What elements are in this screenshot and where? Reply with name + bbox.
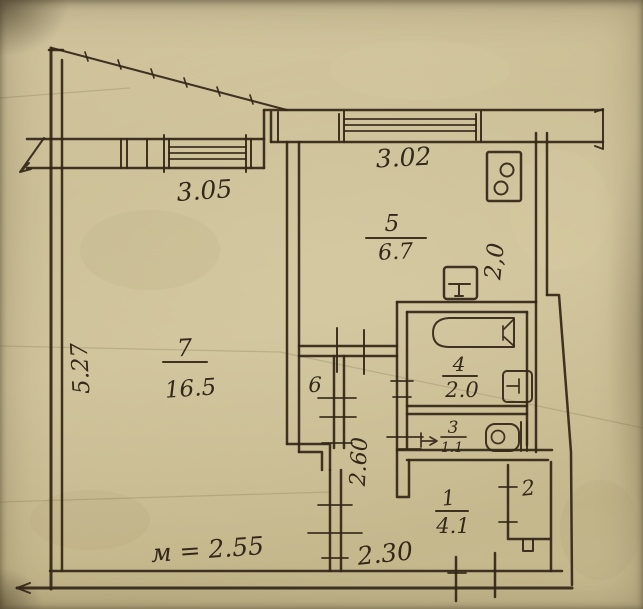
living-room-number-label: 7: [176, 334, 193, 363]
room-labels: 7 16.5 5 6.7 4 2.0 3 1.1 1 4.1 6 2: [163, 211, 536, 538]
closet6-door-marks: [318, 398, 356, 443]
kitchen-width-dimension: 3.02: [375, 142, 432, 174]
kitchen-depth-dimension: 2,0: [480, 242, 510, 282]
living-depth-dimension: 5.27: [67, 342, 96, 395]
hall-left-wall: [330, 470, 341, 571]
bath-wc-divider-wall: [407, 406, 527, 414]
wc-area-label: 1.1: [441, 440, 463, 456]
living-room-window-icon: [164, 135, 251, 172]
closet6-bottom-wall: [287, 444, 330, 470]
wc-door-marks: [387, 437, 423, 449]
entrance-door-marks: [448, 553, 495, 601]
kitchen-bottom-wall: [299, 346, 397, 356]
kitchen-number-label: 5: [385, 211, 400, 237]
living-room-area-label: 16.5: [164, 374, 217, 404]
corridor-wall-stub: [397, 450, 409, 497]
top-wall-step: [264, 110, 271, 168]
bathtub-icon: [433, 318, 514, 347]
corridor-depth-dimension: 2.60: [346, 437, 374, 488]
closet6-number-label: 6: [308, 373, 321, 397]
floor-plan-drawing: 7 16.5 5 6.7 4 2.0 3 1.1 1 4.1 6 2 3.05 …: [0, 0, 643, 609]
kitchen-window-icon: [339, 111, 481, 142]
bathroom-left-wall: [397, 302, 407, 450]
wc-number-label: 3: [448, 418, 459, 438]
bath-area-label: 2.0: [444, 378, 478, 402]
kitchen-area-label: 6.7: [378, 239, 414, 266]
kitchen-sink-icon: [444, 267, 477, 299]
living-room-door-marks: [308, 505, 362, 558]
closet6-right-wall: [334, 356, 344, 448]
wc-door-swing-arrow: [421, 433, 437, 447]
wc-bottom-wall: [398, 450, 552, 460]
hall-area-label: 4.1: [435, 514, 469, 538]
scanned-floor-plan: 7 16.5 5 6.7 4 2.0 3 1.1 1 4.1 6 2 3.05 …: [0, 0, 643, 609]
bath-number-label: 4: [452, 352, 466, 376]
living-room-walls: [20, 110, 271, 172]
hall-width-dimension: 2.30: [355, 536, 414, 571]
living-width-dimension: 3.05: [176, 174, 234, 207]
bathroom-top-wall: [397, 302, 536, 312]
kitchen-top-wall: [264, 110, 603, 142]
paper-texture: [30, 40, 640, 580]
balcony-door-jambs: [121, 139, 147, 168]
hall-number-label: 1: [441, 485, 456, 510]
bathroom-door-marks: [391, 381, 413, 397]
kitchen-left-wall: [287, 142, 299, 452]
toilet-icon: [486, 422, 527, 451]
ceiling-height-note: м = 2.55: [150, 531, 265, 568]
closet2-number-label: 2: [519, 475, 536, 500]
